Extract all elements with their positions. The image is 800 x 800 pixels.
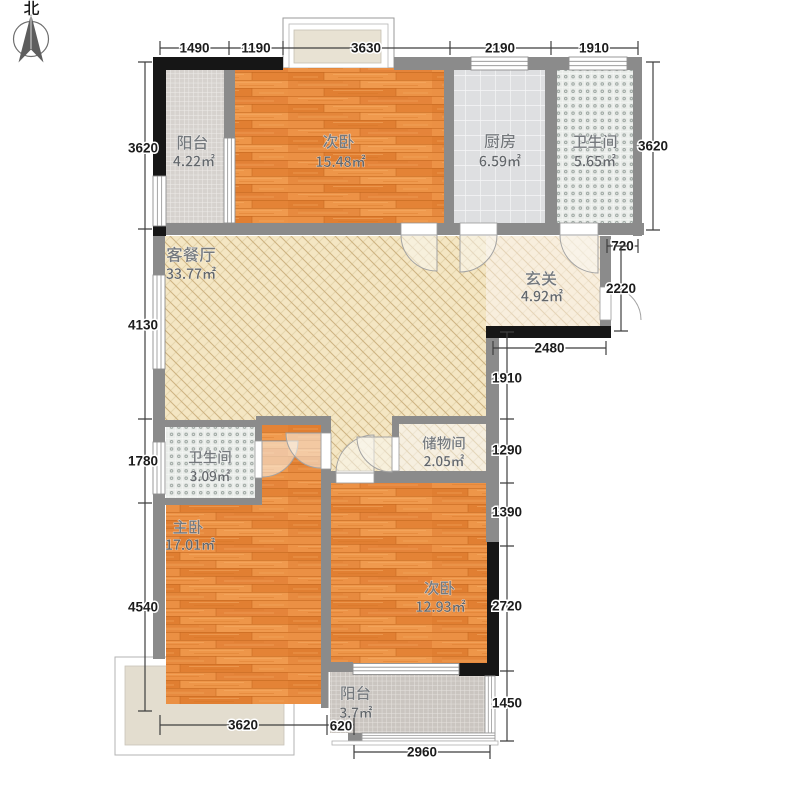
svg-text:1910: 1910 [579,41,609,56]
svg-text:2960: 2960 [407,745,437,760]
svg-text:4540: 4540 [128,600,158,615]
svg-text:3620: 3620 [228,718,258,733]
svg-text:3620: 3620 [638,139,668,154]
svg-text:1450: 1450 [492,696,522,711]
svg-text:2480: 2480 [534,341,564,356]
svg-text:2190: 2190 [485,41,515,56]
svg-text:1290: 1290 [492,443,522,458]
svg-text:1190: 1190 [241,41,270,56]
svg-text:1780: 1780 [128,454,158,469]
svg-text:1910: 1910 [492,371,522,386]
svg-text:620: 620 [330,719,353,734]
svg-text:2220: 2220 [606,281,636,296]
svg-text:1490: 1490 [179,41,209,56]
svg-text:2720: 2720 [492,599,522,614]
svg-text:3620: 3620 [128,141,158,156]
svg-text:4130: 4130 [128,318,158,333]
svg-text:1390: 1390 [492,505,522,520]
svg-text:3630: 3630 [351,41,381,56]
